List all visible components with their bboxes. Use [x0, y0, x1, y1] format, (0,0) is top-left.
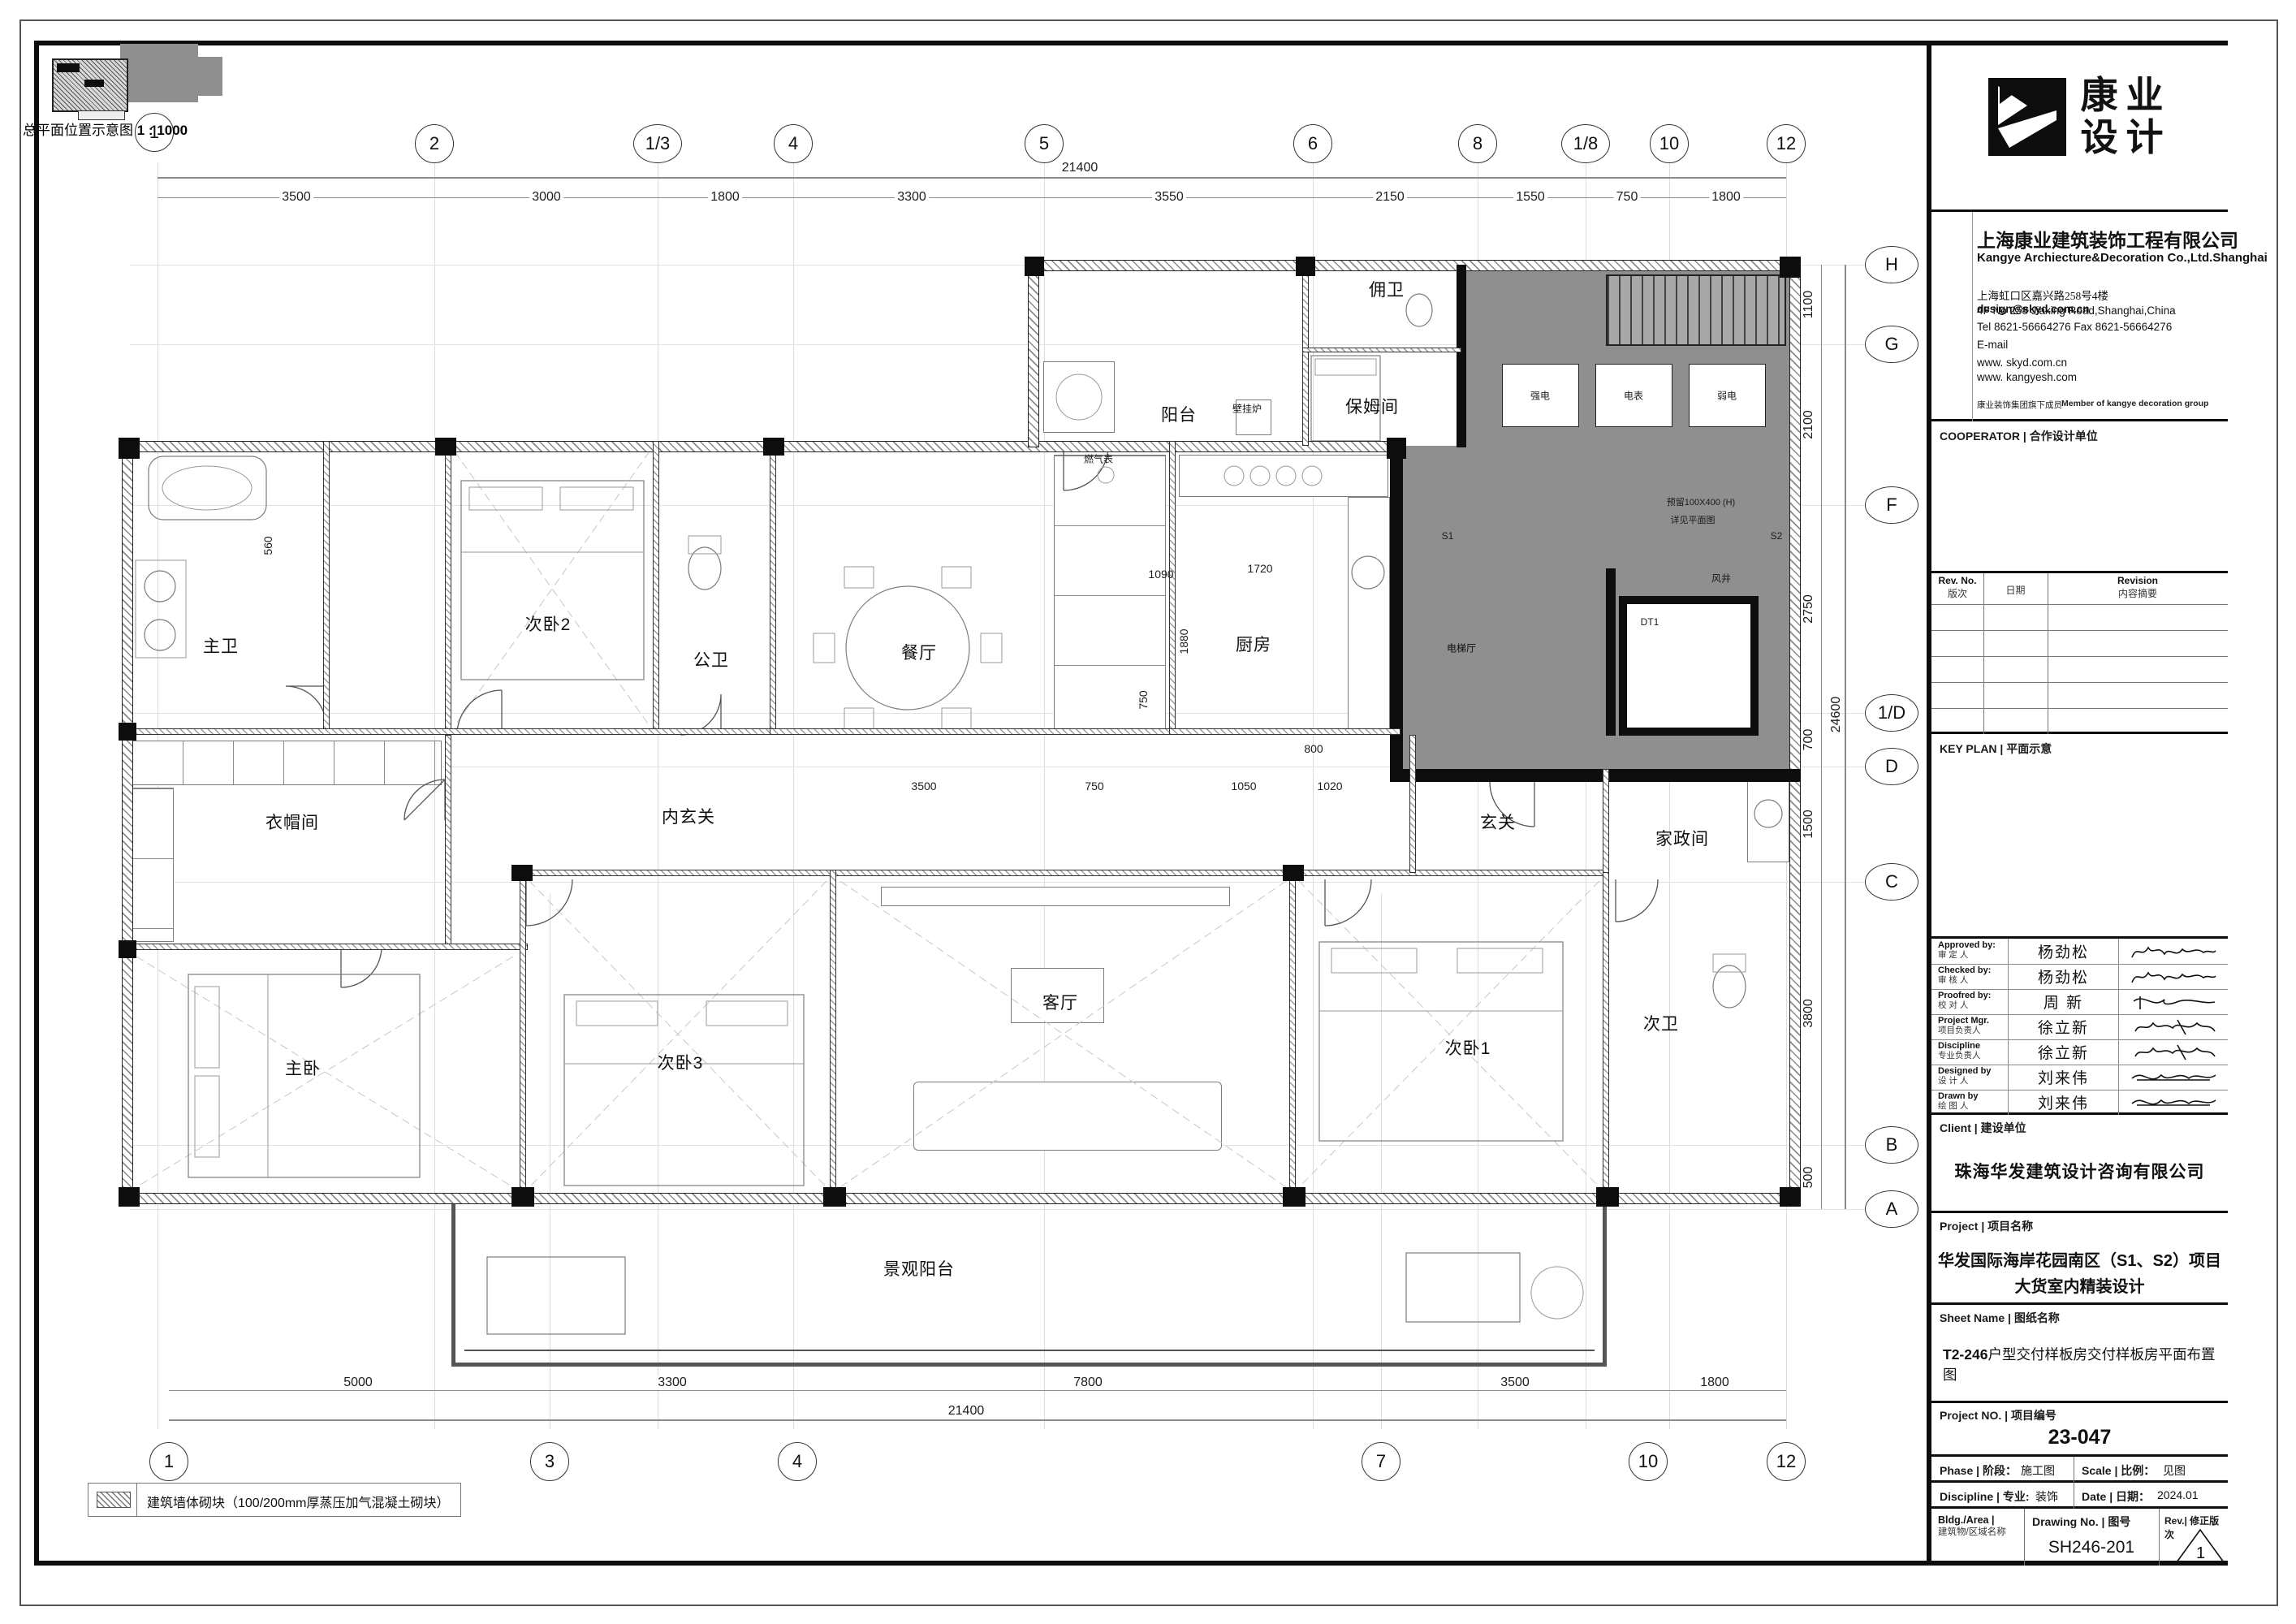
- annotation-s1: S1: [1442, 530, 1454, 542]
- room-label: 保姆间: [1345, 394, 1399, 418]
- grid-bubble-label: 10: [1659, 133, 1679, 154]
- tb-discipline-row: Discipline | 专业: 装饰 Date | 日期： 2024.01: [1931, 1483, 2228, 1509]
- grid-bubble-label: 1/8: [1573, 133, 1599, 154]
- approval-row: Drawn by绘 图 人 刘来伟: [1931, 1090, 2228, 1115]
- room-label: 次卧1: [1445, 1035, 1491, 1060]
- grid-bubble-top: 12: [1767, 124, 1806, 163]
- grid-bubble-label: 2: [429, 133, 439, 154]
- approval-signature: [2119, 1039, 2228, 1065]
- approval-role-en: Proofred by:: [1938, 991, 2008, 1000]
- annotation-boiler: 壁挂炉: [1232, 402, 1262, 416]
- housekeeping-sink-counter: [1747, 781, 1789, 862]
- grid-bubble-label: 12: [1776, 1451, 1796, 1472]
- grid-bubble-right: H: [1865, 246, 1918, 283]
- partition: [770, 728, 1176, 735]
- dim-line-bottom-overall: [169, 1419, 1786, 1421]
- tb-projectno-section: Project NO. | 项目编号 23-047: [1931, 1403, 2228, 1457]
- partition: [770, 441, 776, 735]
- partition: [1169, 441, 1176, 735]
- signature-icon: [2129, 966, 2218, 987]
- column: [435, 438, 456, 456]
- keyplan-scale: 1 : 1000: [137, 123, 188, 138]
- approval-row: Approved by:审 定 人 杨劲松: [1931, 939, 2228, 965]
- dim-text: 1800: [708, 190, 742, 205]
- scale-label: Scale | 比例：: [2082, 1462, 2155, 1479]
- room-label: 景观阳台: [883, 1256, 955, 1281]
- grid-bubble-label: B: [1886, 1134, 1898, 1155]
- dim-text: 7800: [1071, 1376, 1105, 1390]
- approval-signature: [2119, 1014, 2228, 1039]
- keyplan-caption: 总平面位置示意图 1 : 1000: [23, 119, 188, 139]
- kitchen-counter: [1348, 497, 1390, 731]
- dim-text: 2150: [1373, 190, 1407, 205]
- room-label: 家政间: [1655, 826, 1709, 850]
- column: [1780, 257, 1801, 278]
- annotation-note2: 详见平面图: [1671, 513, 1716, 526]
- signature-icon: [2129, 1042, 2218, 1063]
- room-label: 客厅: [1042, 990, 1078, 1014]
- tb-rev-row-line: [1931, 708, 2228, 709]
- room-label: 衣帽间: [265, 810, 319, 834]
- approval-name: 徐立新: [2009, 1014, 2119, 1039]
- column: [1387, 438, 1406, 459]
- tb-drawingno-row: Bldg./Area | 建筑物/区域名称 Drawing No. | 图号 S…: [1931, 1509, 2228, 1566]
- dim-text: 1800: [1709, 190, 1743, 205]
- dim-text: 3000: [529, 190, 563, 205]
- grid-bubble-top: 4: [774, 124, 813, 163]
- wardrobe: [132, 788, 174, 942]
- dim-inner: 1020: [1314, 780, 1344, 793]
- grid-line: [1044, 162, 1045, 1429]
- tb-approvals-section: Approved by:审 定 人 杨劲松 Checked by:审 核 人 杨…: [1931, 939, 2228, 1115]
- approval-name: 杨劲松: [2009, 964, 2119, 989]
- partition: [1289, 870, 1296, 1194]
- signature-icon: [2129, 991, 2218, 1013]
- company-email-label: E-mail: [1977, 339, 2008, 351]
- balcony-wall: [451, 1363, 1607, 1367]
- projectno-value: 23-047: [1931, 1426, 2228, 1449]
- wall: [1028, 265, 1039, 447]
- date-value: 2024.01: [2157, 1488, 2199, 1501]
- annotation-gas-meter: 燃气表: [1084, 452, 1113, 466]
- core-wall: [1390, 769, 1801, 782]
- approval-role-en: Drawn by: [1938, 1091, 2008, 1101]
- grid-bubble-label: 10: [1638, 1451, 1658, 1472]
- column: [1025, 257, 1044, 276]
- column: [511, 865, 533, 881]
- wall: [1789, 260, 1801, 1204]
- revision-en: Revision: [2048, 575, 2228, 586]
- partition: [1603, 769, 1609, 873]
- project-name-line1: 华发国际海岸花园南区（S1、S2）项目: [1931, 1247, 2228, 1271]
- approval-signature: [2119, 1065, 2228, 1090]
- tb-sheetname-section: Sheet Name | 图纸名称 T2-246户型交付样板房交付样板房平面布置…: [1931, 1305, 2228, 1403]
- balcony-rail-line: [464, 1350, 1595, 1351]
- company-tel: Tel 8621-56664276 Fax 8621-56664276: [1977, 321, 2172, 333]
- column: [1283, 865, 1304, 881]
- partition: [1603, 870, 1609, 1194]
- grid-bubble-right: 1/D: [1865, 694, 1918, 732]
- tb-divider: [2074, 1457, 2074, 1483]
- dim-text: 3800: [1802, 996, 1816, 1030]
- partition: [122, 728, 779, 735]
- column: [1296, 257, 1315, 276]
- dim-inner: 1090: [1146, 568, 1176, 581]
- tb-rev-row-line: [1931, 604, 2228, 605]
- company-address-cn: 上海虹口区嘉兴路258号4楼: [1977, 287, 2108, 303]
- grid-bubble-right: C: [1865, 863, 1918, 901]
- company-web2: www. kangyesh.com: [1977, 371, 2077, 383]
- grid-bubble-right: D: [1865, 748, 1918, 785]
- phase-label: Phase | 阶段：: [1940, 1462, 2017, 1479]
- dim-inner: 560: [261, 533, 274, 557]
- tb-cooperator-section: COOPERATOR | 合作设计单位: [1931, 421, 2228, 573]
- grid-line: [434, 162, 435, 1429]
- approval-signature: [2119, 989, 2228, 1014]
- approval-role-en: Checked by:: [1938, 965, 2008, 975]
- logo-line1: 康业: [2081, 75, 2172, 117]
- project-label: Project | 项目名称: [1940, 1218, 2033, 1234]
- balcony-wall: [1603, 1204, 1607, 1367]
- dim-text: 3500: [1498, 1376, 1532, 1390]
- column: [763, 438, 784, 456]
- keyplan-detail: [84, 80, 104, 87]
- dim-line-right-overall: [1845, 265, 1846, 1209]
- bldg-label-cn: 建筑物/区域名称: [1938, 1527, 2006, 1539]
- room-label: 次卧3: [658, 1050, 704, 1074]
- column: [1596, 1187, 1619, 1207]
- grid-bubble-label: 1/3: [645, 133, 671, 154]
- room-label: 内玄关: [662, 804, 715, 828]
- room-label: 阳台: [1161, 402, 1197, 426]
- wardrobe: [132, 741, 442, 785]
- approval-role-cn: 审 核 人: [1938, 975, 2008, 986]
- partition: [1409, 735, 1416, 873]
- member-en: Member of kangye decoration group: [2061, 399, 2208, 408]
- signature-icon: [2129, 1017, 2218, 1038]
- kitchen-counter: [1179, 455, 1388, 497]
- kangye-logo-glyph: [1988, 78, 2066, 156]
- logo: 康业 设计: [1931, 75, 2228, 158]
- partition: [122, 944, 528, 950]
- approval-role-cn: 绘 图 人: [1938, 1101, 2008, 1112]
- room-label: 厨房: [1236, 632, 1271, 656]
- partition: [323, 441, 330, 735]
- rev-date-header: 日期: [1983, 583, 2048, 597]
- dim-text: 500: [1802, 1164, 1816, 1191]
- approval-signature: [2119, 964, 2228, 989]
- dim-text: 3500: [279, 190, 313, 205]
- grid-bubble-top: 6: [1293, 124, 1332, 163]
- rev-no-header: Rev. No. 版次: [1931, 575, 1983, 600]
- room-label: 主卫: [203, 633, 239, 658]
- approval-signature: [2119, 939, 2228, 964]
- column: [511, 1187, 534, 1207]
- washer: [1043, 361, 1115, 433]
- tb-project-section: Project | 项目名称 华发国际海岸花园南区（S1、S2）项目 大货室内精…: [1931, 1213, 2228, 1305]
- annotation-elevator-id: DT1: [1641, 616, 1659, 628]
- room-label: 次卫: [1643, 1011, 1679, 1035]
- partition: [1302, 348, 1461, 352]
- tb-phase-row: Phase | 阶段： 施工图 Scale | 比例： 见图: [1931, 1457, 2228, 1483]
- core-wall: [1457, 265, 1466, 447]
- drawingno-label: Drawing No. | 图号: [2032, 1514, 2130, 1530]
- room-label: 主卧: [285, 1056, 321, 1080]
- tb-rev-col-line: [1983, 573, 1984, 734]
- approval-row: Proofred by:校 对 人 周 新: [1931, 989, 2228, 1015]
- dim-inner: 800: [1301, 742, 1325, 755]
- grid-bubble-top: 8: [1458, 124, 1497, 163]
- signature-icon: [2129, 1092, 2218, 1113]
- approval-name: 徐立新: [2009, 1039, 2119, 1065]
- dim-inner: 750: [1082, 780, 1106, 793]
- kangye-logo-icon: [1988, 78, 2066, 156]
- approval-role-cn: 项目负责人: [1938, 1026, 2008, 1036]
- grid-line: [658, 162, 658, 1429]
- grid-bubble-label: 12: [1776, 133, 1796, 154]
- grid-line: [1381, 893, 1382, 1429]
- dim-inner: 750: [1137, 688, 1150, 711]
- signature-icon: [2129, 941, 2218, 962]
- grid-bubble-top: 1/8: [1561, 124, 1610, 163]
- tb-revision-section: Rev. No. 版次 日期 Revision 内容摘要: [1931, 573, 2228, 734]
- dim-text: 2750: [1802, 592, 1816, 626]
- company-web1: www. skyd.com.cn: [1977, 356, 2067, 369]
- dim-text: 750: [1614, 190, 1641, 205]
- grid-bubble-label: D: [1885, 756, 1898, 777]
- column: [1283, 1187, 1306, 1207]
- room-label-elevator-hall: 电梯厅: [1447, 641, 1476, 655]
- tb-divider: [2159, 1509, 2160, 1566]
- tb-divider: [2074, 1483, 2074, 1509]
- dim-text: 5000: [341, 1376, 375, 1390]
- partition: [520, 870, 526, 1194]
- sheetname-value: T2-246户型交付样板房交付样板房平面布置图: [1943, 1344, 2223, 1384]
- annotation-shaft: 风井: [1711, 572, 1731, 585]
- grid-bubble-right: B: [1865, 1126, 1918, 1164]
- keyplan-detail: [57, 63, 80, 72]
- dim-line-right-segments: [1821, 265, 1822, 1209]
- rev-no-cn: 版次: [1931, 586, 1983, 600]
- company-name-cn: 上海康业建筑装饰工程有限公司: [1977, 225, 2238, 253]
- project-name-line2: 大货室内精装设计: [1931, 1273, 2228, 1297]
- dim-inner: 1720: [1245, 562, 1275, 575]
- bldg-label-en: Bldg./Area |: [1938, 1514, 2006, 1527]
- grid-bubble-top: 1/3: [633, 124, 682, 163]
- approval-name: 周 新: [2009, 989, 2119, 1014]
- client-name: 珠海华发建筑设计咨询有限公司: [1931, 1159, 2228, 1183]
- room-label: 玄关: [1480, 810, 1516, 834]
- grid-bubble-label: 1/D: [1878, 702, 1905, 723]
- discipline-label: Discipline | 专业:: [1940, 1488, 2030, 1505]
- grid-bubble-bottom: 1: [149, 1442, 188, 1481]
- date-label: Date | 日期：: [2082, 1488, 2150, 1505]
- sheetname-label: Sheet Name | 图纸名称: [1940, 1310, 2060, 1326]
- approval-name: 刘来伟: [2009, 1090, 2119, 1115]
- dim-text: 1800: [1698, 1376, 1732, 1390]
- tb-rev-row-line: [1931, 656, 2228, 657]
- dim-inner: 1050: [1228, 780, 1258, 793]
- dim-line-bottom-segments: [169, 1390, 1786, 1391]
- grid-bubble-top: 2: [415, 124, 454, 163]
- tb-client-section: Client | 建设单位 珠海华发建筑设计咨询有限公司: [1931, 1115, 2228, 1213]
- dim-text: 1550: [1513, 190, 1547, 205]
- sheetname-prefix: T2-246: [1943, 1346, 1987, 1363]
- approval-row: Checked by:审 核 人 杨劲松: [1931, 964, 2228, 990]
- approval-signature: [2119, 1090, 2228, 1115]
- dim-text: 3550: [1152, 190, 1186, 205]
- core-wall: [1606, 568, 1616, 736]
- grid-bubble-label: 4: [792, 1451, 802, 1472]
- annotation-s2: S2: [1771, 530, 1783, 542]
- approval-role-en: Approved by:: [1938, 940, 2008, 950]
- tb-keyplan-label: KEY PLAN | 平面示意: [1940, 741, 2052, 757]
- grid-bubble-right: F: [1865, 486, 1918, 524]
- bldg-label: Bldg./Area | 建筑物/区域名称: [1938, 1514, 2006, 1539]
- grid-line: [550, 893, 550, 1429]
- grid-line: [1313, 162, 1314, 1429]
- partition: [445, 735, 451, 950]
- grid-line: [793, 162, 794, 1429]
- grid-bubble-bottom: 4: [778, 1442, 817, 1481]
- sofa: [913, 1082, 1222, 1151]
- grid-bubble-label: C: [1885, 871, 1898, 892]
- tb-company-rule: [1972, 212, 1973, 421]
- approval-role-cn: 校 对 人: [1938, 1000, 2008, 1011]
- dim-line-top-overall: [158, 177, 1786, 179]
- company-name-en: Kangye Archiecture&Decoration Co.,Ltd.Sh…: [1977, 251, 2268, 265]
- tv-cabinet: [881, 887, 1230, 906]
- approval-role-en: Project Mgr.: [1938, 1016, 2008, 1026]
- grid-bubble-label: 8: [1473, 133, 1482, 154]
- approval-role-en: Discipline: [1938, 1041, 2008, 1051]
- column: [119, 723, 136, 741]
- grid-bubble-label: F: [1886, 495, 1897, 516]
- annotation-qiangdian: 强电: [1530, 389, 1550, 403]
- grid-bubble-bottom: 10: [1629, 1442, 1668, 1481]
- grid-bubble-right: G: [1865, 326, 1918, 363]
- dim-text-overall: 24600: [1829, 694, 1844, 736]
- room-label: 公卫: [693, 647, 729, 672]
- annotation-note1: 预留100X400 (H): [1667, 495, 1735, 508]
- partition: [830, 870, 836, 1194]
- column: [823, 1187, 846, 1207]
- dim-text: 3300: [655, 1376, 689, 1390]
- client-label: Client | 建设单位: [1940, 1120, 2026, 1136]
- tb-logo-section: 康业 设计: [1931, 45, 2228, 212]
- company-address-en: 4F No 258 Jiaxing Road,Shanghai,China: [1977, 304, 2176, 317]
- member-cn: 康业装饰集团旗下成员: [1977, 399, 2062, 411]
- dim-text-overall: 21400: [946, 1404, 987, 1419]
- partition: [1302, 265, 1309, 446]
- grid-bubble-label: 6: [1308, 133, 1318, 154]
- partition: [653, 441, 659, 735]
- title-block: 康业 设计 上海康业建筑装饰工程有限公司 Kangye Archiecture&…: [1927, 41, 2228, 1566]
- grid-bubble-label: 3: [545, 1451, 555, 1472]
- projectno-label: Project NO. | 项目编号: [1940, 1407, 2056, 1423]
- wall: [122, 1193, 1801, 1204]
- approval-role-en: Designed by: [1938, 1066, 2008, 1076]
- grid-bubble-top: 10: [1650, 124, 1689, 163]
- grid-bubble-bottom: 3: [530, 1442, 569, 1481]
- partition: [520, 870, 1608, 876]
- dim-text: 3300: [895, 190, 929, 205]
- approval-name: 刘来伟: [2009, 1065, 2119, 1090]
- annotation-dianbiao: 电表: [1624, 389, 1643, 403]
- grid-bubble-bottom: 7: [1362, 1442, 1400, 1481]
- tb-company-section: 上海康业建筑装饰工程有限公司 Kangye Archiecture&Decora…: [1931, 212, 2228, 421]
- tb-rev-row-line: [1931, 630, 2228, 631]
- column: [119, 940, 136, 958]
- column: [1780, 1187, 1801, 1207]
- balcony-wall: [451, 1204, 455, 1367]
- drawing-sheet: 总平面位置示意图 1 : 1000 3500 3000 1800 3300 35…: [0, 0, 2296, 1624]
- tb-rev-row-line: [1931, 682, 2228, 683]
- approval-role-cn: 设 计 人: [1938, 1076, 2008, 1086]
- drawingno-value: SH246-201: [2024, 1538, 2159, 1557]
- grid-bubble-label: 7: [1376, 1451, 1386, 1472]
- signature-icon: [2129, 1067, 2218, 1088]
- dim-text: 2100: [1802, 408, 1816, 442]
- column: [119, 438, 140, 459]
- phase-value: 施工图: [2021, 1462, 2055, 1479]
- legend-box: 建筑墙体砌块（100/200mm厚蒸压加气混凝土砌块）: [88, 1483, 461, 1517]
- room-label: 佣卫: [1369, 277, 1405, 301]
- dim-text: 1500: [1802, 807, 1816, 841]
- column: [119, 1187, 140, 1207]
- dim-inner: 3500: [908, 780, 939, 793]
- grid-bubble-label: 4: [788, 133, 798, 154]
- discipline-value: 装饰: [2035, 1488, 2058, 1505]
- logo-wordmark: 康业 设计: [2081, 75, 2172, 158]
- grid-bubble-top: 5: [1025, 124, 1064, 163]
- wall: [1028, 260, 1801, 271]
- grid-bubble-label: 1: [164, 1451, 174, 1472]
- keyplan-caption-text: 总平面位置示意图: [23, 123, 133, 138]
- scale-value: 见图: [2163, 1462, 2186, 1479]
- cooperator-label: COOPERATOR | 合作设计单位: [1940, 428, 2098, 444]
- grid-bubble-label: H: [1885, 254, 1898, 275]
- approval-row: Designed by设 计 人 刘来伟: [1931, 1065, 2228, 1091]
- core-stair: [1606, 274, 1786, 346]
- grid-line: [130, 1209, 1867, 1210]
- tb-keyplan-section: KEY PLAN | 平面示意: [1931, 734, 2228, 939]
- partition: [1169, 728, 1400, 735]
- partition: [445, 441, 451, 735]
- approval-role-cn: 审 定 人: [1938, 950, 2008, 961]
- legend-hatch-swatch: [97, 1492, 131, 1508]
- approval-row: Discipline专业负责人 徐立新: [1931, 1039, 2228, 1065]
- approval-role-cn: 专业负责人: [1938, 1051, 2008, 1061]
- grid-bubble-label: A: [1886, 1199, 1898, 1220]
- rev-value: 1: [2196, 1544, 2205, 1563]
- legend-text: 建筑墙体砌块（100/200mm厚蒸压加气混凝土砌块）: [147, 1492, 450, 1511]
- dim-text-overall: 21400: [1060, 161, 1101, 175]
- rev-desc-header: Revision 内容摘要: [2048, 575, 2228, 600]
- approval-row: Project Mgr.项目负责人 徐立新: [1931, 1014, 2228, 1040]
- annotation-ruodian: 弱电: [1717, 389, 1737, 403]
- approval-name: 杨劲松: [2009, 939, 2119, 964]
- dim-text: 700: [1802, 727, 1816, 754]
- room-label: 次卧2: [525, 611, 572, 636]
- room-label: 餐厅: [901, 640, 937, 664]
- rev-no-en: Rev. No.: [1931, 575, 1983, 586]
- grid-bubble-label: 5: [1039, 133, 1049, 154]
- logo-line2: 设计: [2081, 117, 2172, 159]
- dim-inner: 1880: [1177, 626, 1190, 656]
- wall: [122, 441, 1396, 452]
- legend-swatch-cell: [88, 1484, 137, 1516]
